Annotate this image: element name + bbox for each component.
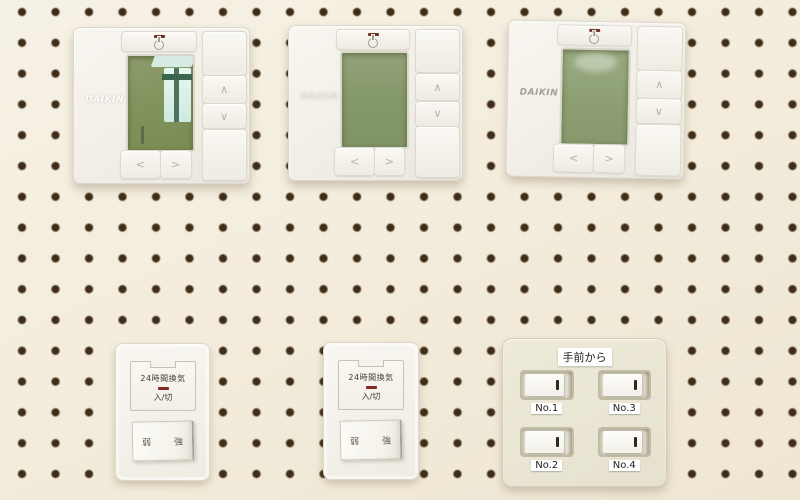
lcd-screen (340, 51, 409, 149)
vent-switch-plate-1: 24時間換気 入/切 弱 強 (115, 343, 210, 481)
switch-cell: No.4 (598, 427, 652, 481)
switch-cap (525, 431, 564, 453)
switch-cell: No.2 (520, 427, 574, 481)
chevron-right-icon: > (171, 159, 180, 170)
down-button[interactable]: ∨ (415, 101, 459, 127)
switch-panel: 手前から No.1 No.3 No.2 (502, 338, 667, 487)
vent-indicator-lamp (158, 387, 169, 390)
down-button[interactable]: ∨ (636, 98, 682, 125)
chevron-up-icon: ∧ (220, 84, 228, 95)
power-icon (368, 38, 378, 48)
chevron-right-icon: > (604, 153, 613, 164)
daikin-logo: DAIKIN (296, 92, 343, 102)
strength-low-label: 弱 (142, 435, 151, 448)
vent-strength-rocker[interactable]: 弱 強 (340, 419, 403, 460)
rocker-switch-no3[interactable] (598, 370, 652, 400)
rocker-notch (358, 360, 384, 367)
rocker-switch-no1[interactable] (520, 370, 574, 400)
switch-indicator (556, 437, 559, 447)
chevron-left-icon: < (569, 152, 578, 163)
vent-indicator-lamp (366, 386, 377, 389)
vent-onoff-label: 入/切 (339, 391, 403, 402)
up-button[interactable]: ∧ (415, 73, 459, 101)
left-button[interactable]: < (120, 150, 161, 179)
vent-title-label: 24時間換気 (131, 373, 195, 384)
reflection-streak (141, 126, 144, 145)
function-button-top[interactable] (202, 31, 247, 76)
window-reflection (164, 68, 191, 122)
switch-cell: No.1 (520, 370, 574, 424)
switch-cap (603, 374, 642, 396)
chevron-left-icon: < (136, 159, 145, 170)
rocker-switch-no4[interactable] (598, 427, 652, 457)
chevron-down-icon: ∨ (433, 108, 441, 119)
daikin-logo: DAIKIN (515, 87, 563, 98)
switch-label: No.1 (531, 403, 562, 414)
right-button[interactable]: > (374, 147, 405, 176)
strength-high-label: 強 (174, 434, 183, 447)
switch-grid: No.1 No.3 No.2 No.4 (520, 370, 651, 480)
strength-low-label: 弱 (350, 434, 359, 447)
switch-cap (603, 431, 642, 453)
rocker-switch-no2[interactable] (520, 427, 574, 457)
right-button[interactable]: > (593, 144, 625, 174)
up-button[interactable]: ∧ (636, 70, 682, 99)
thermostat-3: DAIKIN < > ∧ ∨ (506, 19, 687, 179)
window-frame-reflection (174, 68, 178, 122)
switch-indicator (634, 380, 637, 390)
power-button[interactable] (556, 24, 632, 47)
switch-label: No.4 (609, 460, 640, 471)
switch-label: No.3 (609, 403, 640, 414)
switch-cell: No.3 (598, 370, 652, 424)
lcd-screen (126, 54, 196, 153)
vent-switch-plate-2: 24時間換気 入/切 弱 強 (323, 342, 419, 480)
switch-cap (525, 374, 564, 396)
left-button[interactable]: < (552, 143, 594, 173)
down-button[interactable]: ∨ (202, 103, 247, 129)
lcd-screen (559, 47, 631, 147)
thermostat-1: DAIKIN < > ∧ ∨ (73, 27, 250, 184)
power-icon (154, 40, 164, 50)
function-button-top[interactable] (637, 26, 683, 71)
chevron-down-icon: ∨ (655, 106, 663, 117)
chevron-left-icon: < (350, 156, 359, 167)
strength-high-label: 強 (382, 433, 391, 446)
chevron-up-icon: ∧ (655, 79, 663, 90)
function-button-bottom[interactable] (415, 126, 459, 178)
left-button[interactable]: < (334, 147, 375, 176)
function-button-bottom[interactable] (202, 129, 247, 181)
window-reflection (150, 54, 195, 67)
function-button-top[interactable] (415, 29, 459, 73)
chevron-up-icon: ∧ (433, 82, 441, 93)
right-button[interactable]: > (160, 150, 192, 179)
up-button[interactable]: ∧ (202, 75, 247, 103)
vent-onoff-label: 入/切 (131, 392, 195, 403)
power-icon (589, 34, 599, 44)
panel-header-label: 手前から (558, 348, 612, 366)
function-button-bottom[interactable] (635, 123, 681, 176)
vent-onoff-rocker[interactable]: 24時間換気 入/切 (130, 361, 196, 411)
thermostat-2: DAIKIN < > ∧ ∨ (288, 25, 463, 181)
daikin-logo: DAIKIN (81, 95, 128, 105)
vent-strength-rocker[interactable]: 弱 強 (132, 420, 195, 461)
vent-title-label: 24時間換気 (339, 372, 403, 383)
rocker-notch (150, 361, 176, 368)
switch-indicator (556, 380, 559, 390)
switch-label: No.2 (531, 460, 562, 471)
switch-indicator (634, 437, 637, 447)
power-button[interactable] (336, 29, 411, 50)
power-button[interactable] (121, 31, 197, 52)
chevron-down-icon: ∨ (220, 111, 228, 122)
light-reflection (574, 53, 617, 73)
chevron-right-icon: > (385, 156, 394, 167)
pegboard-wall: DAIKIN < > ∧ ∨ DAIKIN < > ∧ ∨ (0, 0, 800, 500)
vent-onoff-rocker[interactable]: 24時間換気 入/切 (338, 360, 404, 410)
